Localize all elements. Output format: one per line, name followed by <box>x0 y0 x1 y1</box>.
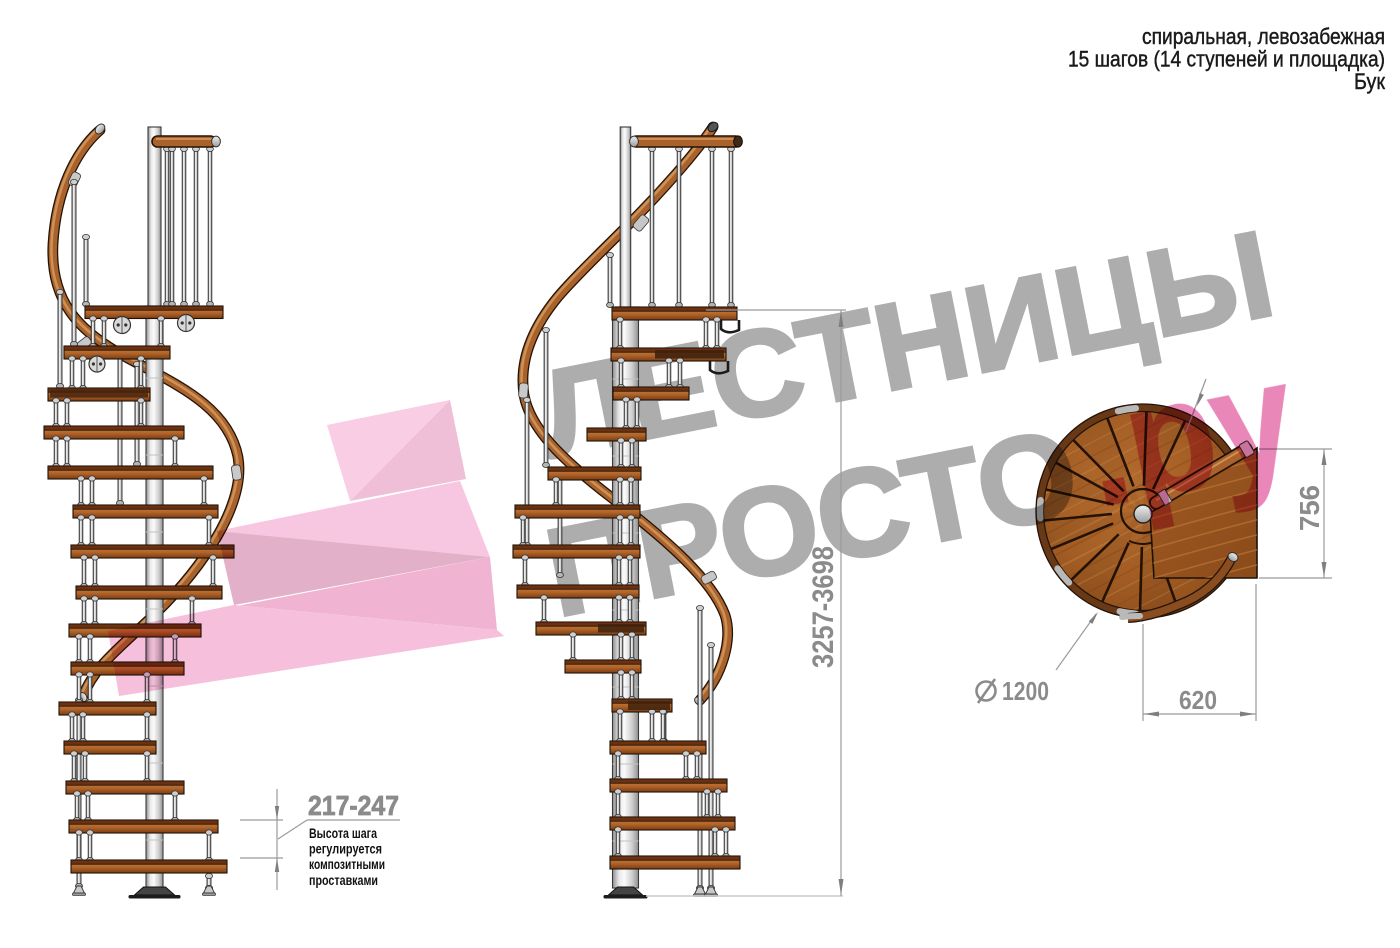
svg-text:Высота шага: Высота шага <box>309 826 377 841</box>
svg-text:регулируется: регулируется <box>309 842 382 857</box>
svg-text:1200: 1200 <box>1002 676 1049 706</box>
svg-text:15 шагов (14 ступеней и площад: 15 шагов (14 ступеней и площадка) <box>1068 47 1385 72</box>
svg-text:620: 620 <box>1179 685 1217 715</box>
svg-text:Бук: Бук <box>1354 69 1385 94</box>
svg-text:проставками: проставками <box>309 873 378 888</box>
svg-text:спиральная, левозабежная: спиральная, левозабежная <box>1142 24 1385 49</box>
svg-text:217-247: 217-247 <box>308 790 399 821</box>
svg-text:3257-3698: 3257-3698 <box>807 546 840 668</box>
svg-text:композитными: композитными <box>309 857 385 872</box>
